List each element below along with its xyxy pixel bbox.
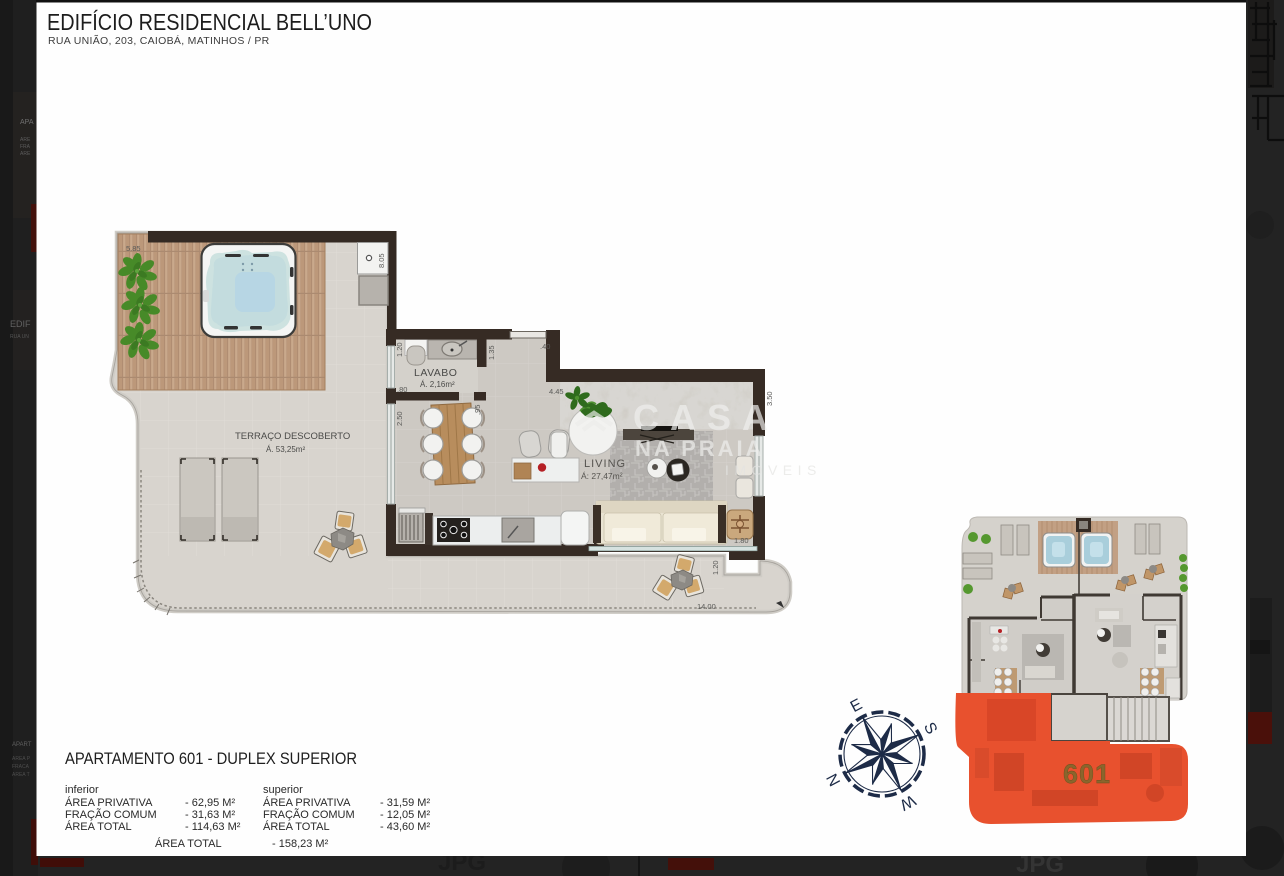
svg-text:ÁREA PRIVATIVA: ÁREA PRIVATIVA [65, 796, 153, 809]
svg-text:.95: .95 [473, 405, 482, 415]
svg-text:8.05: 8.05 [377, 253, 386, 268]
svg-text:Á. 2,16m²: Á. 2,16m² [420, 380, 455, 389]
svg-text:4.45: 4.45 [549, 387, 564, 396]
svg-text:AREA P: AREA P [12, 756, 31, 762]
svg-text:ÁREA TOTAL: ÁREA TOTAL [263, 820, 330, 833]
svg-text:FRAÇÃO COMUM: FRAÇÃO COMUM [263, 808, 355, 821]
svg-text:- 43,60 M²: - 43,60 M² [380, 821, 430, 833]
svg-text:LIVING: LIVING [584, 458, 626, 470]
svg-text:APART: APART [12, 742, 32, 748]
svg-text:ARE: ARE [20, 151, 31, 157]
svg-text:.80: .80 [397, 385, 407, 394]
svg-text:2.50: 2.50 [395, 411, 404, 426]
svg-text:1.20: 1.20 [395, 342, 404, 357]
svg-text:ARE: ARE [20, 137, 31, 143]
svg-text:- 114,63 M²: - 114,63 M² [185, 821, 241, 833]
svg-text:- 31,63 M²: - 31,63 M² [185, 809, 235, 821]
svg-text:1.35: 1.35 [487, 345, 496, 360]
svg-text:Á. 53,25m²: Á. 53,25m² [266, 445, 305, 454]
svg-text:- 158,23 M²: - 158,23 M² [272, 838, 329, 850]
svg-text:RUA UNIÃO, 203, CAIOBÁ, MATINH: RUA UNIÃO, 203, CAIOBÁ, MATINHOS / PR [48, 34, 270, 47]
svg-text:superior: superior [263, 784, 303, 796]
svg-text:APA: APA [20, 119, 34, 126]
svg-text:ÁREA TOTAL: ÁREA TOTAL [155, 837, 222, 850]
svg-text:1.20: 1.20 [711, 560, 720, 575]
svg-text:TERRAÇO DESCOBERTO: TERRAÇO DESCOBERTO [235, 431, 350, 442]
svg-text:- 12,05 M²: - 12,05 M² [380, 809, 430, 821]
svg-text:ÁREA PRIVATIVA: ÁREA PRIVATIVA [263, 796, 351, 809]
svg-text:601: 601 [1063, 759, 1111, 789]
svg-text:Á: 27,47m²: Á: 27,47m² [581, 471, 623, 481]
svg-text:14.00: 14.00 [697, 602, 716, 611]
svg-text:APARTAMENTO 601 - DUPLEX SUPER: APARTAMENTO 601 - DUPLEX SUPERIOR [65, 750, 357, 768]
svg-text:NA PRAIA: NA PRAIA [635, 436, 765, 461]
svg-text:- 62,95 M²: - 62,95 M² [185, 797, 235, 809]
svg-text:.40: .40 [540, 342, 550, 351]
svg-text:1.80: 1.80 [734, 536, 749, 545]
svg-text:FRA: FRA [20, 144, 31, 150]
svg-text:FRAÇÃO COMUM: FRAÇÃO COMUM [65, 808, 157, 821]
svg-text:EDIFÍCIO RESIDENCIAL BELL’UNO: EDIFÍCIO RESIDENCIAL BELL’UNO [47, 9, 372, 35]
svg-text:LAVABO: LAVABO [414, 367, 457, 379]
svg-text:5.85: 5.85 [126, 244, 141, 253]
svg-text:ÁREA TOTAL: ÁREA TOTAL [65, 820, 132, 833]
svg-text:CASA: CASA [633, 397, 779, 438]
svg-text:AREA T: AREA T [12, 772, 30, 778]
svg-text:RUA UN: RUA UN [10, 334, 29, 340]
svg-text:inferior: inferior [65, 784, 99, 796]
svg-text:- 31,59 M²: - 31,59 M² [380, 797, 430, 809]
svg-text:FRACA: FRACA [12, 764, 30, 770]
svg-text:EDIF: EDIF [10, 319, 31, 329]
svg-text:IMÓVEIS: IMÓVEIS [725, 462, 822, 478]
